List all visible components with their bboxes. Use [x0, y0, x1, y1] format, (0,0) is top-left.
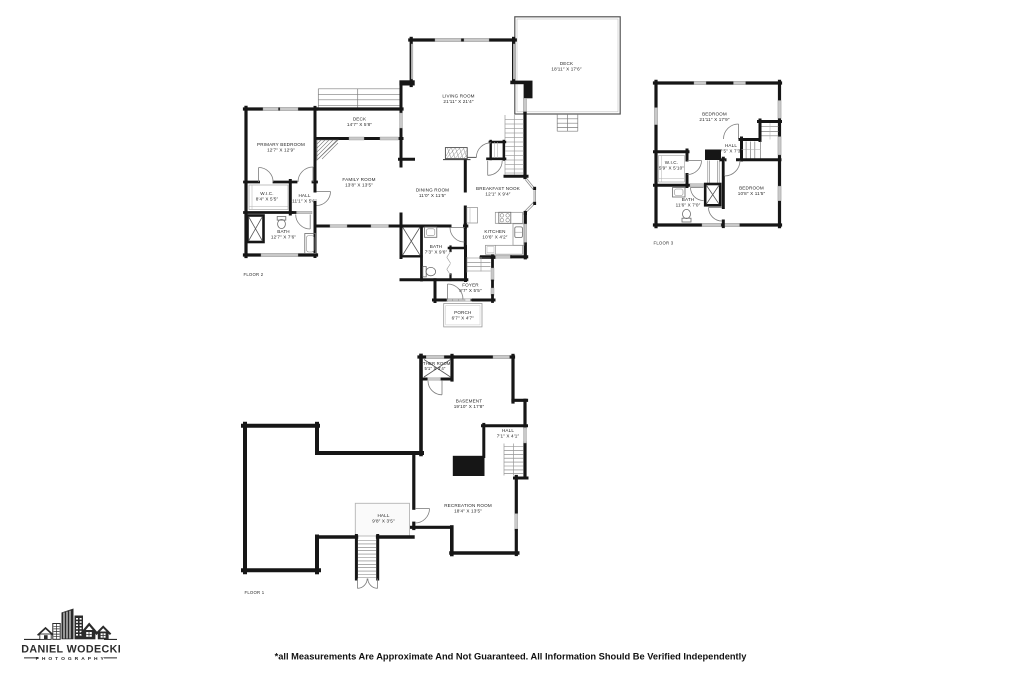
- svg-text:18′11″ X 17′6″: 18′11″ X 17′6″: [551, 66, 581, 71]
- svg-text:BATH: BATH: [430, 244, 443, 249]
- svg-text:PORCH: PORCH: [454, 310, 471, 315]
- svg-text:FLOOR 1: FLOOR 1: [245, 590, 265, 595]
- svg-text:8′7″ X 5′5″: 8′7″ X 5′5″: [459, 288, 482, 293]
- svg-text:FLOOR 3: FLOOR 3: [654, 241, 674, 246]
- svg-text:7′5″ X 7′3″: 7′5″ X 7′3″: [720, 148, 743, 153]
- svg-text:DECK: DECK: [560, 61, 574, 66]
- svg-text:BATH: BATH: [682, 197, 695, 202]
- svg-text:13′8″ X 13′5″: 13′8″ X 13′5″: [345, 182, 373, 187]
- svg-text:9′8″ X 3′5″: 9′8″ X 3′5″: [372, 518, 395, 523]
- svg-text:LIVING ROOM: LIVING ROOM: [442, 93, 474, 98]
- svg-text:21′11″ X 17′9″: 21′11″ X 17′9″: [699, 117, 729, 122]
- svg-text:RECREATION ROOM: RECREATION ROOM: [444, 503, 492, 508]
- svg-text:HALL: HALL: [298, 193, 310, 198]
- svg-text:HALL: HALL: [377, 513, 389, 518]
- svg-text:10′6″ X 4′2″: 10′6″ X 4′2″: [482, 234, 507, 239]
- svg-text:HALL: HALL: [502, 428, 514, 433]
- svg-text:18′4″ X 13′5″: 18′4″ X 13′5″: [454, 508, 482, 513]
- svg-text:7′1″ X 4′1″: 7′1″ X 4′1″: [497, 433, 520, 438]
- svg-text:19′10″ X 17′8″: 19′10″ X 17′8″: [454, 404, 485, 409]
- svg-text:FOYER: FOYER: [462, 282, 479, 287]
- svg-text:5′9″ X 5′10″: 5′9″ X 5′10″: [659, 165, 684, 170]
- svg-text:BATH: BATH: [277, 229, 290, 234]
- svg-text:11′0″ X 11′5″: 11′0″ X 11′5″: [419, 193, 446, 198]
- svg-text:DANIEL WODECKI: DANIEL WODECKI: [21, 644, 121, 656]
- svg-text:DINING ROOM: DINING ROOM: [416, 187, 449, 192]
- svg-text:DECK: DECK: [353, 116, 367, 121]
- svg-text:*all Measurements Are Approxim: *all Measurements Are Approximate And No…: [275, 652, 748, 662]
- svg-text:HALL: HALL: [725, 143, 737, 148]
- svg-text:12′7″ X 12′9″: 12′7″ X 12′9″: [267, 147, 295, 152]
- svg-text:12′7″ X 7′6″: 12′7″ X 7′6″: [271, 235, 296, 240]
- svg-text:PHOTOGRAPHY: PHOTOGRAPHY: [36, 656, 107, 662]
- svg-text:12′1″ X 9′4″: 12′1″ X 9′4″: [485, 191, 510, 196]
- svg-text:14′7″ X 5′8″: 14′7″ X 5′8″: [347, 122, 372, 127]
- svg-text:W.I.C.: W.I.C.: [260, 191, 273, 196]
- svg-text:11′1″ X 5′6″: 11′1″ X 5′6″: [292, 198, 317, 203]
- svg-text:BEDROOM: BEDROOM: [702, 111, 727, 116]
- svg-text:10′8″ X 11′5″: 10′8″ X 11′5″: [738, 191, 766, 196]
- svg-text:FLOOR 2: FLOOR 2: [244, 272, 264, 277]
- svg-text:PRIMARY BEDROOM: PRIMARY BEDROOM: [257, 142, 305, 147]
- svg-text:KITCHEN: KITCHEN: [484, 229, 505, 234]
- svg-text:BEDROOM: BEDROOM: [739, 185, 764, 190]
- svg-text:BREAKFAST NOOK: BREAKFAST NOOK: [476, 186, 521, 191]
- svg-text:21′11″ X 21′4″: 21′11″ X 21′4″: [443, 99, 473, 104]
- svg-text:11′6″ X 7′0″: 11′6″ X 7′0″: [676, 202, 701, 207]
- svg-text:7′3″ X 9′6″: 7′3″ X 9′6″: [425, 249, 448, 254]
- svg-text:W.I.C.: W.I.C.: [665, 160, 678, 165]
- svg-text:6′7″ X 4′7″: 6′7″ X 4′7″: [452, 315, 475, 320]
- svg-text:5′1″ X 3′4″: 5′1″ X 3′4″: [424, 366, 445, 371]
- svg-text:FAMILY ROOM: FAMILY ROOM: [342, 177, 375, 182]
- svg-text:8′4″ X 5′5″: 8′4″ X 5′5″: [256, 196, 279, 201]
- svg-text:BASEMENT: BASEMENT: [456, 398, 483, 403]
